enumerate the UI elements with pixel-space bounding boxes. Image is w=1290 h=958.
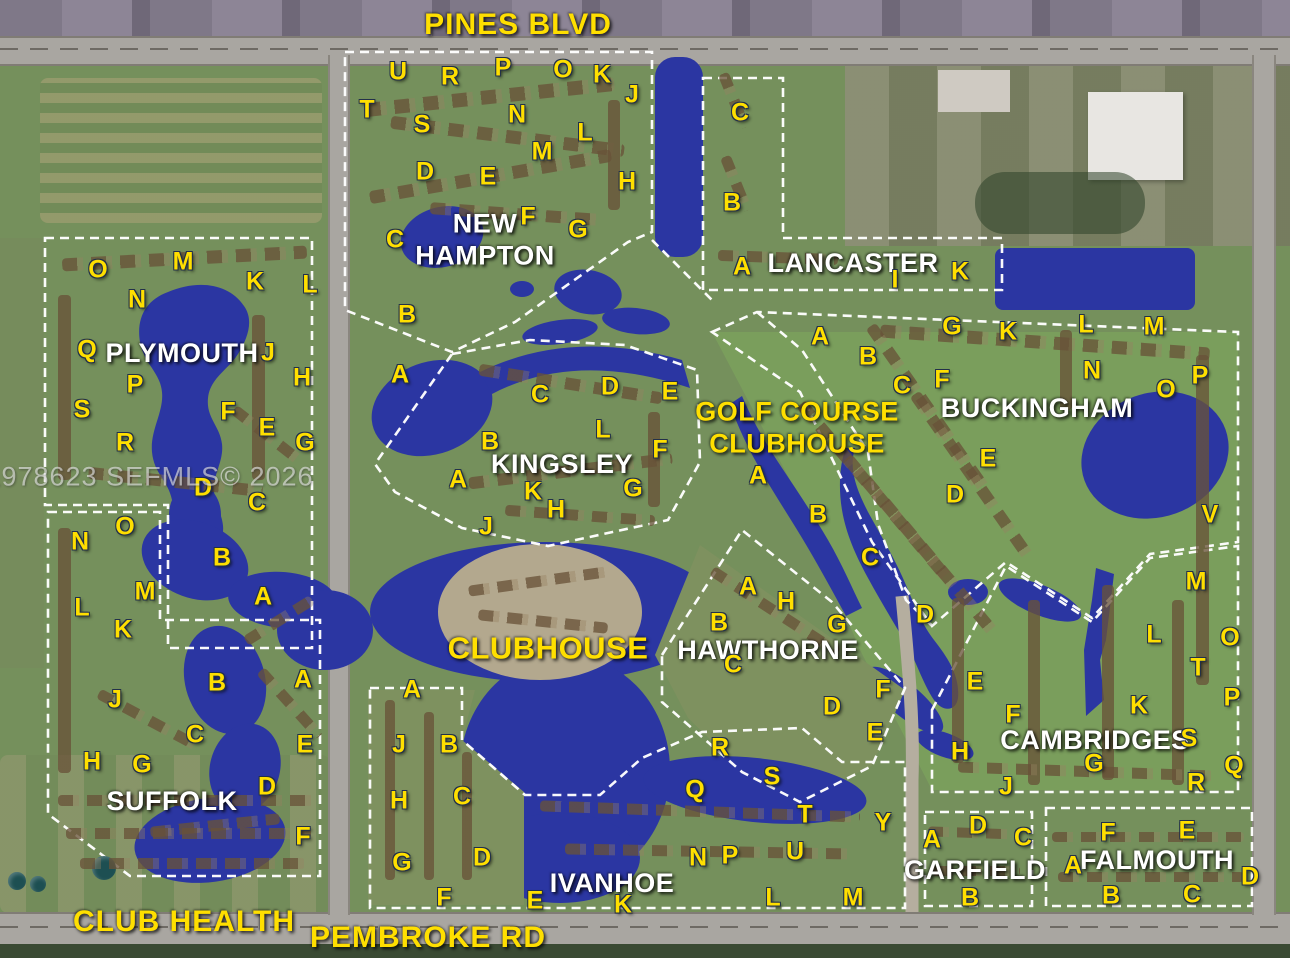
unit-letter-H: H — [777, 590, 795, 615]
place-label-pembroke-rd: PEMBROKE RD — [310, 920, 546, 956]
unit-letter-L: L — [74, 596, 89, 621]
unit-letter-D: D — [473, 846, 491, 871]
unit-letter-E: E — [297, 733, 314, 758]
unit-letter-D: D — [416, 160, 434, 185]
unit-letter-E: E — [662, 380, 679, 405]
unit-letter-E: E — [980, 447, 997, 472]
unit-letter-U: U — [786, 840, 804, 865]
unit-letter-A: A — [733, 255, 751, 280]
unit-letter-K: K — [951, 260, 969, 285]
unit-letter-A: A — [449, 468, 467, 493]
unit-letter-J: J — [999, 775, 1013, 800]
unit-letter-A: A — [923, 828, 941, 853]
unit-letter-F: F — [520, 205, 535, 230]
unit-letter-M: M — [843, 886, 864, 911]
unit-letter-L: L — [1146, 623, 1161, 648]
unit-letter-B: B — [723, 191, 741, 216]
unit-letter-F: F — [652, 438, 667, 463]
unit-letter-B: B — [961, 886, 979, 911]
unit-letter-D: D — [1241, 865, 1259, 890]
place-label-club-health: CLUB HEALTH — [73, 904, 295, 940]
mls-watermark: A11978623 SEFMLS© 2026 — [0, 462, 314, 493]
unit-letter-E: E — [259, 416, 276, 441]
unit-letter-C: C — [531, 383, 549, 408]
unit-letter-M: M — [135, 580, 156, 605]
building-row — [424, 712, 434, 880]
unit-letter-B: B — [859, 345, 877, 370]
unit-letter-K: K — [593, 63, 611, 88]
unit-letter-U: U — [389, 60, 407, 85]
unit-letter-G: G — [827, 613, 846, 638]
unit-letter-G: G — [1084, 752, 1103, 777]
unit-letter-N: N — [689, 846, 707, 871]
unit-letter-M: M — [173, 250, 194, 275]
unit-letter-P: P — [495, 56, 512, 81]
place-label-kingsley: KINGSLEY — [491, 448, 633, 480]
unit-letter-C: C — [248, 491, 266, 516]
unit-letter-J: J — [625, 83, 639, 108]
unit-letter-C: C — [1183, 883, 1201, 908]
unit-letter-D: D — [823, 695, 841, 720]
unit-letter-C: C — [453, 785, 471, 810]
unit-letter-I: I — [892, 268, 899, 293]
unit-letter-S: S — [1181, 727, 1198, 752]
unit-letter-A: A — [403, 678, 421, 703]
unit-letter-N: N — [128, 288, 146, 313]
unit-letter-O: O — [1220, 626, 1239, 651]
unit-letter-H: H — [618, 170, 636, 195]
unit-letter-D: D — [946, 483, 964, 508]
unit-letter-K: K — [246, 270, 264, 295]
unit-letter-K: K — [614, 893, 632, 918]
unit-letter-B: B — [440, 733, 458, 758]
unit-letter-R: R — [711, 736, 729, 761]
unit-letter-H: H — [951, 740, 969, 765]
unit-letter-B: B — [1102, 884, 1120, 909]
unit-letter-O: O — [115, 515, 134, 540]
building-row — [80, 858, 305, 869]
unit-letter-F: F — [1005, 703, 1020, 728]
lake-newhampton-3 — [510, 281, 534, 297]
unit-letter-C: C — [893, 374, 911, 399]
lake-newhampton-east — [655, 57, 703, 257]
unit-letter-A: A — [739, 575, 757, 600]
unit-letter-O: O — [553, 58, 572, 83]
tank-circle-2 — [30, 876, 46, 892]
building-row — [58, 528, 71, 773]
place-label-suffolk: SUFFOLK — [107, 785, 238, 817]
unit-letter-C: C — [386, 228, 404, 253]
aerial-community-map: PINES BLVDNEW HAMPTONLANCASTERPLYMOUTHKI… — [0, 0, 1290, 958]
unit-letter-R: R — [116, 431, 134, 456]
unit-letter-H: H — [293, 366, 311, 391]
place-label-buckingham: BUCKINGHAM — [941, 392, 1133, 424]
building-row — [66, 828, 311, 839]
unit-letter-C: C — [724, 653, 742, 678]
place-label-plymouth: PLYMOUTH — [105, 337, 258, 369]
unit-letter-G: G — [392, 851, 411, 876]
unit-letter-A: A — [811, 325, 829, 350]
place-label-golf-course-clubhouse: GOLF COURSE CLUBHOUSE — [695, 396, 899, 461]
building-row — [462, 752, 472, 880]
unit-letter-D: D — [916, 603, 934, 628]
unit-letter-N: N — [71, 530, 89, 555]
unit-letter-M: M — [1186, 570, 1207, 595]
unit-letter-A: A — [391, 363, 409, 388]
unit-letter-B: B — [710, 611, 728, 636]
unit-letter-T: T — [797, 803, 812, 828]
place-label-lancaster: LANCASTER — [768, 247, 939, 279]
unit-letter-D: D — [969, 814, 987, 839]
unit-letter-F: F — [934, 368, 949, 393]
unit-letter-J: J — [479, 515, 493, 540]
unit-letter-B: B — [213, 546, 231, 571]
unit-letter-B: B — [208, 671, 226, 696]
unit-letter-R: R — [1187, 771, 1205, 796]
unit-letter-F: F — [1100, 821, 1115, 846]
unit-letter-G: G — [132, 753, 151, 778]
unit-letter-E: E — [967, 670, 984, 695]
unit-letter-T: T — [1190, 656, 1205, 681]
unit-letter-L: L — [302, 273, 317, 298]
unit-letter-D: D — [258, 775, 276, 800]
unit-letter-G: G — [295, 431, 314, 456]
place-label-ivanhoe: IVANHOE — [550, 867, 675, 899]
unit-letter-K: K — [114, 618, 132, 643]
unit-letter-K: K — [524, 480, 542, 505]
unit-letter-Q: Q — [685, 778, 704, 803]
unit-letter-H: H — [83, 750, 101, 775]
unit-letter-R: R — [441, 65, 459, 90]
unit-letter-P: P — [1224, 686, 1241, 711]
unit-letter-J: J — [108, 688, 122, 713]
unit-letter-C: C — [186, 723, 204, 748]
unit-letter-S: S — [74, 398, 91, 423]
building-row — [58, 295, 71, 480]
unit-letter-L: L — [1078, 313, 1093, 338]
lake-lancaster-rect — [995, 248, 1195, 310]
unit-letter-A: A — [294, 668, 312, 693]
unit-letter-H: H — [547, 498, 565, 523]
unit-letter-L: L — [765, 886, 780, 911]
unit-letter-C: C — [861, 546, 879, 571]
unit-letter-Q: Q — [1224, 754, 1243, 779]
unit-letter-T: T — [359, 98, 374, 123]
unit-letter-B: B — [398, 303, 416, 328]
unit-letter-F: F — [875, 678, 890, 703]
unit-letter-E: E — [527, 889, 544, 914]
unit-letter-A: A — [1064, 854, 1082, 879]
unit-letter-S: S — [414, 113, 431, 138]
unit-letter-Q: Q — [77, 338, 96, 363]
unit-letter-O: O — [88, 258, 107, 283]
unit-letter-J: J — [261, 341, 275, 366]
unit-letter-P: P — [1192, 364, 1209, 389]
unit-letter-O: O — [1156, 378, 1175, 403]
unit-letter-P: P — [127, 373, 144, 398]
place-label-hawthorne: HAWTHORNE — [677, 634, 859, 666]
lake-clubhouse-west-pond — [277, 590, 373, 670]
unit-letter-K: K — [999, 320, 1017, 345]
unit-letter-G: G — [568, 218, 587, 243]
unit-letter-K: K — [1130, 694, 1148, 719]
unit-letter-N: N — [1083, 359, 1101, 384]
unit-letter-L: L — [577, 121, 592, 146]
unit-letter-B: B — [481, 430, 499, 455]
place-label-pines-blvd: PINES BLVD — [424, 7, 612, 43]
unit-letter-F: F — [436, 886, 451, 911]
unit-letter-H: H — [390, 789, 408, 814]
unit-letter-B: B — [809, 503, 827, 528]
unit-letter-J: J — [392, 733, 406, 758]
unit-letter-D: D — [601, 375, 619, 400]
unit-letter-E: E — [867, 721, 884, 746]
unit-letter-Y: Y — [875, 811, 892, 836]
place-label-clubhouse: CLUBHOUSE — [448, 629, 649, 666]
unit-letter-F: F — [295, 825, 310, 850]
building-row — [1052, 832, 1244, 842]
unit-letter-G: G — [942, 315, 961, 340]
unit-letter-G: G — [623, 477, 642, 502]
unit-letter-A: A — [749, 464, 767, 489]
unit-letter-C: C — [731, 101, 749, 126]
unit-letter-V: V — [1202, 503, 1219, 528]
unit-letter-M: M — [1144, 315, 1165, 340]
unit-letter-C: C — [1014, 826, 1032, 851]
building-row — [1028, 600, 1040, 785]
unit-letter-A: A — [254, 585, 272, 610]
unit-letter-F: F — [220, 400, 235, 425]
place-label-garfield: GARFIELD — [904, 854, 1046, 886]
place-label-falmouth: FALMOUTH — [1080, 844, 1234, 876]
unit-letter-L: L — [595, 418, 610, 443]
unit-letter-N: N — [508, 103, 526, 128]
tank-circle-1 — [8, 872, 26, 890]
building-row — [1172, 600, 1184, 785]
unit-letter-E: E — [1179, 819, 1196, 844]
unit-letter-P: P — [722, 844, 739, 869]
unit-letter-E: E — [480, 165, 497, 190]
unit-letter-M: M — [532, 140, 553, 165]
unit-letter-S: S — [764, 765, 781, 790]
